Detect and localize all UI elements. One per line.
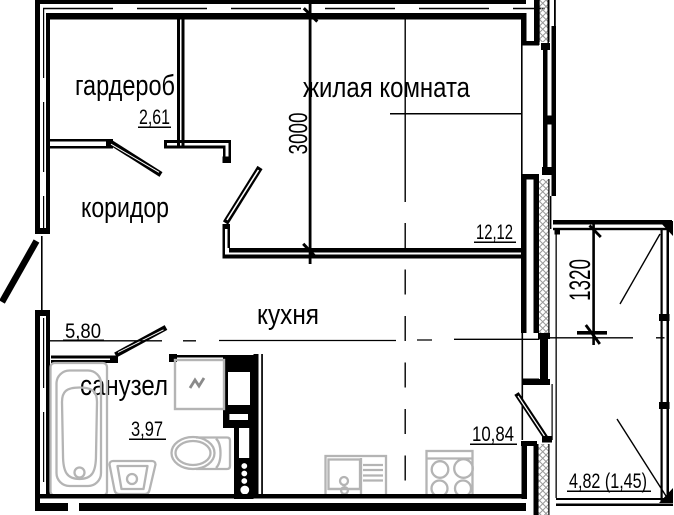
svg-text:1320: 1320 [564,259,597,301]
svg-text:жилая комната: жилая комната [303,72,471,104]
svg-text:12,12: 12,12 [476,221,513,244]
svg-text:2,61: 2,61 [139,106,170,129]
svg-text:кухня: кухня [257,299,319,331]
svg-text:4,82 (1,45): 4,82 (1,45) [569,470,647,493]
svg-text:коридор: коридор [81,192,169,224]
svg-text:санузел: санузел [80,370,168,402]
svg-text:3000: 3000 [283,113,313,155]
svg-text:гардероб: гардероб [75,70,175,102]
svg-text:10,84: 10,84 [472,423,514,446]
svg-text:3,97: 3,97 [131,418,163,441]
